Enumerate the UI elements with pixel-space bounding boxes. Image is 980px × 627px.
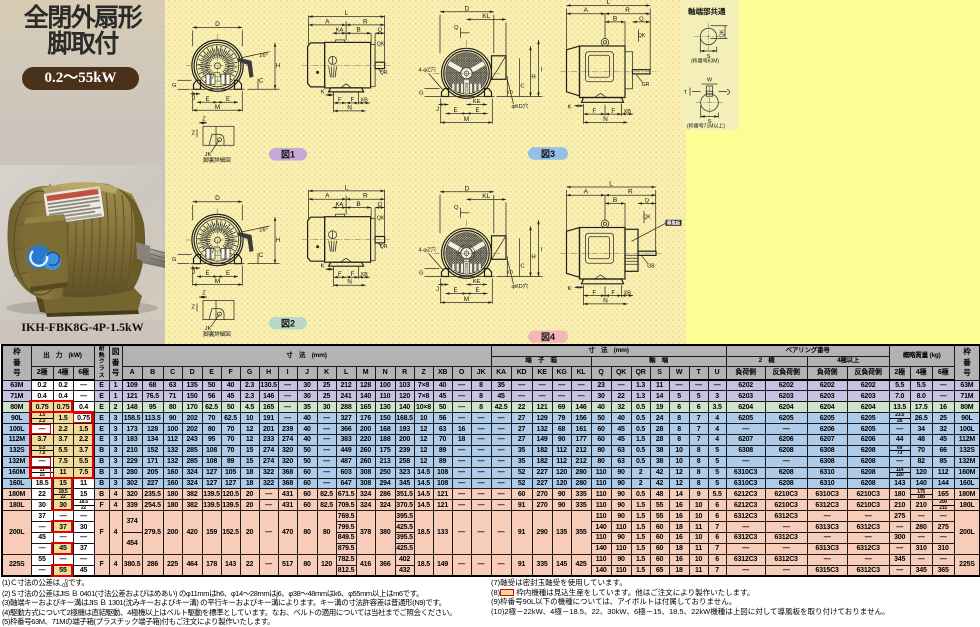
svg-text:H: H: [531, 74, 535, 80]
svg-text:Q: Q: [454, 205, 459, 211]
svg-text:図3: 図3: [541, 149, 555, 159]
svg-text:H: H: [531, 254, 535, 260]
svg-text:QR: QR: [380, 244, 388, 250]
svg-text:E: E: [226, 271, 230, 277]
svg-text:KE: KE: [473, 279, 481, 285]
svg-text:C: C: [520, 83, 524, 89]
svg-text:A: A: [584, 189, 589, 196]
svg-text:F: F: [592, 109, 596, 115]
svg-text:GR: GR: [642, 82, 650, 88]
svg-text:図2: 図2: [281, 319, 295, 329]
svg-text:Q: Q: [378, 202, 383, 208]
svg-text:E: E: [453, 108, 457, 114]
svg-text:L: L: [607, 0, 611, 6]
svg-text:M: M: [464, 296, 469, 303]
svg-text:F: F: [611, 290, 615, 296]
svg-text:L: L: [609, 181, 613, 188]
svg-text:KA: KA: [335, 28, 343, 34]
svg-text:N: N: [603, 297, 608, 304]
svg-text:L: L: [345, 184, 349, 191]
svg-text:QK: QK: [720, 29, 726, 37]
svg-text:導風板: 導風板: [667, 220, 681, 227]
svg-text:B: B: [356, 201, 360, 208]
svg-text:F: F: [611, 109, 615, 115]
svg-text:D: D: [465, 5, 470, 12]
svg-text:B: B: [613, 197, 617, 204]
svg-text:N: N: [603, 116, 608, 123]
svg-text:B: B: [613, 15, 617, 22]
svg-text:XB: XB: [360, 272, 368, 278]
svg-text:φKD穴: φKD穴: [512, 103, 529, 110]
svg-text:B: B: [356, 27, 360, 34]
svg-text:KL: KL: [482, 193, 490, 200]
svg-text:XB: XB: [624, 290, 632, 296]
svg-text:QK: QK: [377, 216, 385, 222]
svg-text:F: F: [592, 290, 596, 296]
svg-text:N: N: [347, 104, 352, 111]
svg-text:G: G: [172, 83, 177, 89]
svg-text:W: W: [707, 78, 713, 84]
svg-text:E: E: [205, 97, 209, 103]
svg-text:H: H: [276, 64, 280, 70]
svg-text:D: D: [465, 185, 470, 192]
svg-text:E: E: [205, 271, 209, 277]
svg-text:K: K: [568, 286, 572, 292]
svg-text:4-φZ穴: 4-φZ穴: [419, 66, 437, 73]
svg-text:F: F: [338, 98, 342, 104]
svg-text:E: E: [226, 97, 230, 103]
svg-text:K: K: [568, 104, 572, 110]
svg-text:QR: QR: [380, 70, 388, 76]
svg-text:4-φZ穴: 4-φZ穴: [419, 246, 437, 253]
svg-text:N: N: [347, 279, 352, 286]
svg-text:G: G: [419, 271, 424, 277]
svg-text:R: R: [628, 189, 633, 196]
svg-text:脚裏詳細図: 脚裏詳細図: [203, 156, 231, 164]
svg-text:(枠番号63M): (枠番号63M): [691, 58, 719, 65]
svg-text:軸端部共通: 軸端部共通: [688, 6, 726, 16]
svg-text:QK: QK: [377, 41, 385, 47]
svg-text:F: F: [351, 272, 355, 278]
svg-text:Q: Q: [454, 25, 459, 31]
svg-text:K: K: [321, 89, 325, 95]
svg-text:C: C: [520, 263, 524, 269]
svg-text:KE: KE: [473, 99, 481, 105]
svg-text:L: L: [345, 10, 349, 17]
svg-text:R: R: [363, 193, 368, 200]
svg-text:16°: 16°: [259, 53, 268, 59]
svg-text:M: M: [464, 116, 469, 123]
svg-text:A: A: [584, 7, 589, 14]
svg-text:G: G: [419, 91, 424, 97]
svg-text:R: R: [625, 7, 630, 14]
svg-text:D: D: [215, 195, 220, 202]
svg-text:A: A: [325, 18, 330, 25]
svg-text:(枠番号71M以上): (枠番号71M以上): [687, 123, 725, 130]
svg-text:図1: 図1: [281, 150, 295, 160]
svg-text:M: M: [215, 104, 220, 111]
svg-text:E: E: [475, 108, 479, 114]
svg-text:J: J: [436, 107, 439, 113]
svg-text:Q: Q: [639, 16, 644, 22]
svg-text:R: R: [363, 18, 368, 25]
svg-text:XB: XB: [624, 109, 632, 115]
svg-text:図4: 図4: [541, 332, 555, 342]
svg-text:A: A: [325, 193, 330, 200]
svg-text:D: D: [215, 21, 220, 28]
svg-text:Z: Z: [202, 291, 206, 297]
svg-text:K: K: [321, 264, 325, 270]
svg-text:φKD穴: φKD穴: [512, 283, 529, 290]
svg-text:KL: KL: [482, 13, 490, 20]
svg-text:Q: Q: [378, 28, 383, 34]
svg-text:G: G: [172, 257, 177, 263]
svg-text:H: H: [276, 238, 280, 244]
svg-text:C: C: [259, 79, 264, 85]
svg-text:Z: Z: [191, 130, 195, 136]
svg-text:F: F: [338, 272, 342, 278]
svg-text:E: E: [475, 288, 479, 294]
svg-text:脚裏詳細図: 脚裏詳細図: [203, 330, 231, 338]
svg-text:QK: QK: [638, 33, 646, 39]
svg-text:C: C: [259, 253, 264, 259]
svg-text:KA: KA: [335, 202, 343, 208]
svg-text:GB: GB: [647, 263, 655, 269]
svg-text:Z: Z: [191, 305, 195, 311]
svg-text:QK: QK: [643, 214, 651, 220]
svg-text:Q: Q: [645, 198, 650, 204]
svg-text:F: F: [351, 98, 355, 104]
svg-text:M: M: [215, 278, 220, 285]
svg-text:16°: 16°: [259, 228, 268, 234]
svg-text:Z: Z: [202, 116, 206, 122]
svg-text:E: E: [453, 288, 457, 294]
svg-text:XB: XB: [360, 98, 368, 104]
svg-text:J: J: [436, 287, 439, 293]
